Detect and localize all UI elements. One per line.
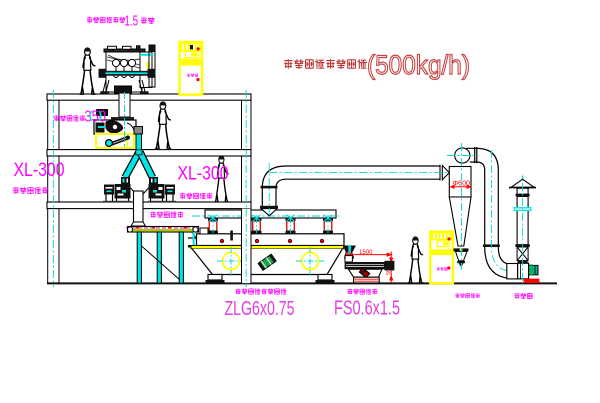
svg-text:(500kg/h): (500kg/h) [367,50,470,80]
svg-text:FS0.6x1.5: FS0.6x1.5 [334,298,400,320]
svg-text:350: 350 [85,109,107,126]
svg-text:1500: 1500 [359,249,373,256]
svg-text:XL-300: XL-300 [14,160,65,181]
svg-text:XL-300: XL-300 [178,164,229,185]
svg-text:1.5: 1.5 [125,13,139,30]
svg-text:ZLG6x0.75: ZLG6x0.75 [225,298,295,320]
